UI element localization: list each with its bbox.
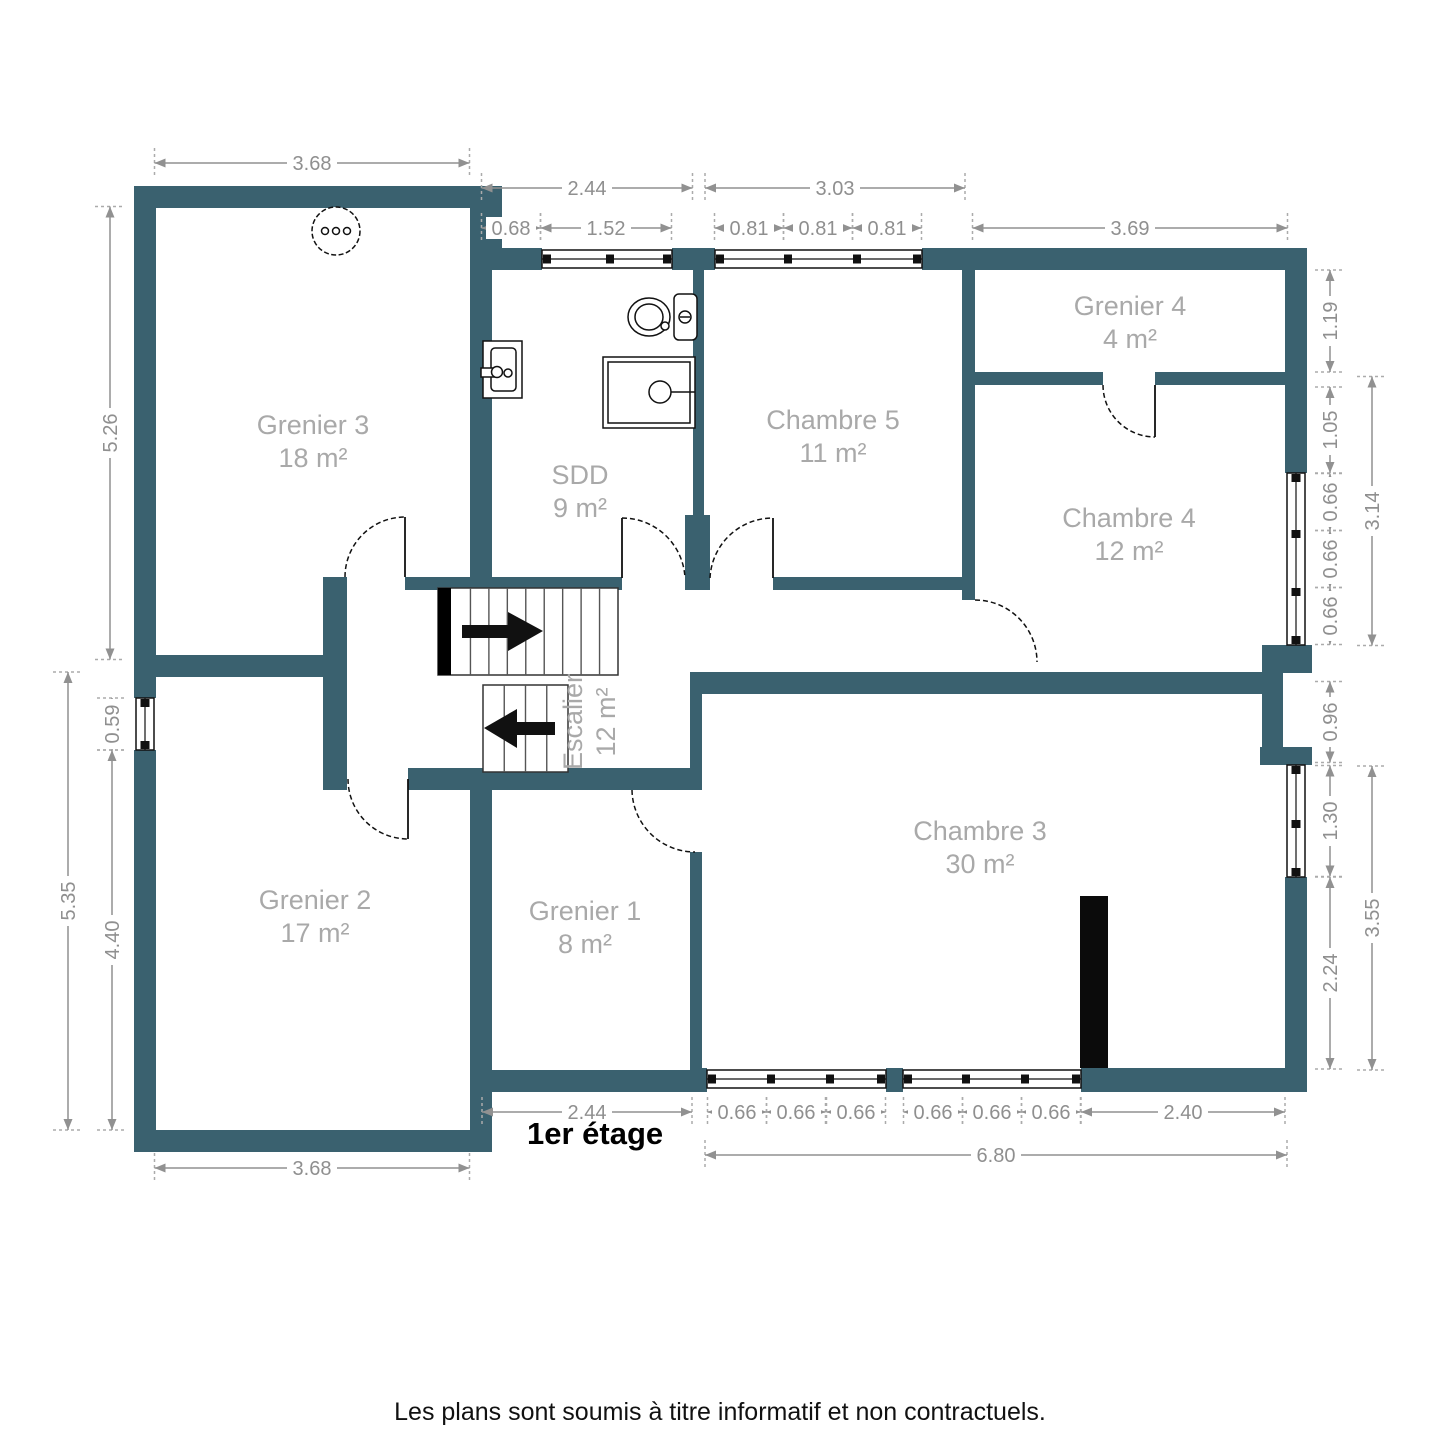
- room-name: Grenier 4: [1074, 291, 1187, 321]
- dimension-annotation: 0.66: [827, 1097, 886, 1127]
- dimension-annotation: 0.81: [715, 213, 784, 243]
- wall-segment: [134, 750, 156, 1152]
- wall-segment: [156, 655, 323, 677]
- stair-down-arrow-icon: [517, 722, 555, 735]
- wall-segment: [134, 1130, 490, 1152]
- dimension-annotation: 0.66: [708, 1097, 767, 1127]
- dimension-label: 1.19: [1320, 302, 1342, 341]
- dimension-annotation: 0.66: [1022, 1097, 1081, 1127]
- wall-segment: [323, 577, 347, 790]
- dimension-annotation: 1.05: [1315, 387, 1345, 473]
- room-name: Chambre 4: [1062, 503, 1196, 533]
- door-swing-icon: [348, 779, 408, 839]
- ceiling-light-icon: [312, 207, 360, 255]
- wall-segment: [470, 248, 492, 578]
- window-icon: [707, 1070, 886, 1088]
- wall-segment: [1262, 645, 1312, 673]
- dimension-annotation: 0.68: [482, 213, 541, 243]
- room-label-escalier: Escalier12 m²: [557, 674, 623, 770]
- wall-segment: [690, 694, 702, 790]
- room-area: 12 m²: [1062, 535, 1196, 568]
- room-area: 12 m²: [590, 674, 623, 770]
- dimension-annotation: 0.66: [904, 1097, 963, 1127]
- dimension-label: 0.81: [799, 218, 838, 240]
- room-label-grenier-4: Grenier 44 m²: [1074, 290, 1187, 356]
- door-swing-icon: [622, 518, 685, 578]
- wall-segment: [1262, 673, 1283, 747]
- wall-segment: [1155, 372, 1285, 385]
- wall-segment: [690, 852, 702, 1070]
- dimension-annotation: 5.26: [95, 207, 125, 660]
- door-swing-icon: [345, 517, 405, 577]
- dimension-label: 6.80: [977, 1145, 1016, 1167]
- wall-segment: [773, 577, 964, 590]
- sink-icon: [481, 341, 522, 398]
- room-name: Grenier 2: [259, 885, 372, 915]
- dimension-label: 1.52: [587, 218, 626, 240]
- dimension-label: 0.81: [730, 218, 769, 240]
- door-swing-icon: [1103, 385, 1155, 437]
- dimension-label: 2.40: [1164, 1102, 1203, 1124]
- dimension-annotation: 2.44: [482, 173, 693, 203]
- dimension-annotation: 0.66: [963, 1097, 1022, 1127]
- wall-segment: [1260, 747, 1312, 765]
- dimension-annotation: 2.40: [1081, 1097, 1285, 1127]
- shower-icon: [603, 357, 695, 428]
- room-label-chambre-3: Chambre 330 m²: [913, 815, 1047, 881]
- dimension-label: 2.44: [568, 178, 607, 200]
- room-label-chambre-5: Chambre 511 m²: [766, 404, 900, 470]
- wall-segment: [482, 1070, 707, 1092]
- dimension-annotation: 0.66: [1315, 588, 1345, 645]
- chimney: [1080, 896, 1108, 1068]
- dimension-label: 3.14: [1362, 492, 1384, 531]
- wall-segment: [672, 248, 715, 270]
- window-icon: [136, 698, 154, 750]
- dimension-label: 0.96: [1320, 703, 1342, 742]
- wall-segment: [1285, 877, 1307, 1092]
- room-name: Chambre 3: [913, 816, 1047, 846]
- toilet-icon: [628, 294, 697, 340]
- dimension-label: 4.40: [102, 921, 124, 960]
- window-icon: [1287, 765, 1305, 877]
- wall-segment: [975, 372, 1103, 385]
- room-label-grenier-2: Grenier 217 m²: [259, 884, 372, 950]
- dimension-label: 0.66: [973, 1102, 1012, 1124]
- dimension-label: 1.05: [1320, 411, 1342, 450]
- room-label-sdd: SDD9 m²: [551, 459, 608, 525]
- room-label-chambre-4: Chambre 412 m²: [1062, 502, 1196, 568]
- door-swing-icon: [710, 518, 773, 578]
- dimension-annotation: 0.81: [784, 213, 853, 243]
- dimension-label: 0.66: [837, 1102, 876, 1124]
- dimension-label: 0.66: [1320, 540, 1342, 579]
- room-name: Grenier 1: [529, 896, 642, 926]
- dimension-annotation: 4.40: [97, 750, 127, 1130]
- window-icon: [542, 250, 672, 268]
- disclaimer-text: Les plans sont soumis à titre informatif…: [0, 1398, 1440, 1427]
- dimension-annotation: 1.52: [541, 213, 672, 243]
- dimension-label: 3.03: [816, 178, 855, 200]
- room-area: 11 m²: [766, 437, 900, 470]
- dimension-annotation: 3.69: [973, 213, 1288, 243]
- dimension-label: 3.68: [293, 1158, 332, 1180]
- room-area: 9 m²: [551, 492, 608, 525]
- dimension-annotation: 3.03: [705, 173, 965, 203]
- staircase-down-flight: [483, 685, 568, 772]
- wall-segment: [134, 186, 156, 698]
- dimension-label: 0.59: [102, 705, 124, 744]
- floor-title: 1er étage: [527, 1116, 663, 1152]
- dimension-label: 3.68: [293, 153, 332, 175]
- room-area: 18 m²: [257, 442, 370, 475]
- dimension-annotation: 5.35: [53, 672, 83, 1130]
- dimension-annotation: 0.66: [767, 1097, 826, 1127]
- dimension-annotation: 0.66: [1315, 474, 1345, 531]
- dimension-annotation: 3.68: [155, 148, 470, 178]
- window-icon: [715, 250, 922, 268]
- room-name: Escalier: [558, 674, 588, 770]
- dimension-annotation: 0.59: [97, 698, 127, 750]
- dimension-label: 0.66: [914, 1102, 953, 1124]
- door-swing-icon: [632, 790, 695, 852]
- door-swing-icon: [975, 600, 1037, 662]
- room-area: 8 m²: [529, 928, 642, 961]
- dimension-label: 0.66: [1032, 1102, 1071, 1124]
- dimension-annotation: 3.68: [155, 1153, 470, 1183]
- wall-segment: [685, 515, 710, 590]
- dimension-label: 3.69: [1111, 218, 1150, 240]
- room-name: SDD: [551, 460, 608, 490]
- floor-plan-page: { "title": "1er étage", "footer": "Les p…: [0, 0, 1440, 1440]
- wall-segment: [1081, 1068, 1307, 1092]
- dimension-label: 0.66: [777, 1102, 816, 1124]
- dimension-annotation: 3.55: [1357, 766, 1387, 1070]
- room-name: Grenier 3: [257, 410, 370, 440]
- wall-segment: [962, 270, 975, 600]
- dimension-label: 0.66: [718, 1102, 757, 1124]
- room-name: Chambre 5: [766, 405, 900, 435]
- dimension-label: 0.68: [492, 218, 531, 240]
- dimension-label: 2.24: [1320, 954, 1342, 993]
- dimension-label: 0.66: [1320, 597, 1342, 636]
- staircase-up-flight: [438, 588, 618, 675]
- room-area: 17 m²: [259, 917, 372, 950]
- room-area: 4 m²: [1074, 323, 1187, 356]
- dimension-annotation: 3.14: [1357, 377, 1387, 646]
- wall-segment: [690, 1068, 707, 1092]
- wall-segment: [470, 790, 492, 1152]
- dimension-annotation: 0.96: [1315, 682, 1345, 763]
- dimension-annotation: 1.30: [1315, 766, 1345, 877]
- dimension-label: 0.66: [1320, 483, 1342, 522]
- wall-segment: [1285, 248, 1307, 473]
- wall-segment: [134, 186, 502, 208]
- dimension-label: 0.81: [868, 218, 907, 240]
- wall-segment: [962, 248, 1307, 270]
- window-icon: [1287, 473, 1305, 645]
- room-label-grenier-3: Grenier 318 m²: [257, 409, 370, 475]
- dimension-label: 5.35: [58, 882, 80, 921]
- dimension-annotation: 0.81: [853, 213, 922, 243]
- window-icon: [903, 1070, 1081, 1088]
- wall-segment: [690, 672, 1267, 694]
- dimension-label: 3.55: [1362, 899, 1384, 938]
- dimension-annotation: 2.24: [1315, 877, 1345, 1069]
- room-area: 30 m²: [913, 848, 1047, 881]
- floor-plan-canvas: 3.682.440.681.523.030.810.810.813.695.26…: [0, 0, 1440, 1440]
- dimension-label: 1.30: [1320, 802, 1342, 841]
- room-label-grenier-1: Grenier 18 m²: [529, 895, 642, 961]
- dimension-label: 5.26: [100, 414, 122, 453]
- dimension-annotation: 0.66: [1315, 531, 1345, 588]
- wall-segment: [886, 1068, 903, 1092]
- dimension-annotation: 1.19: [1315, 270, 1345, 372]
- stair-up-arrow-icon: [462, 625, 508, 638]
- dimension-annotation: 6.80: [705, 1140, 1287, 1170]
